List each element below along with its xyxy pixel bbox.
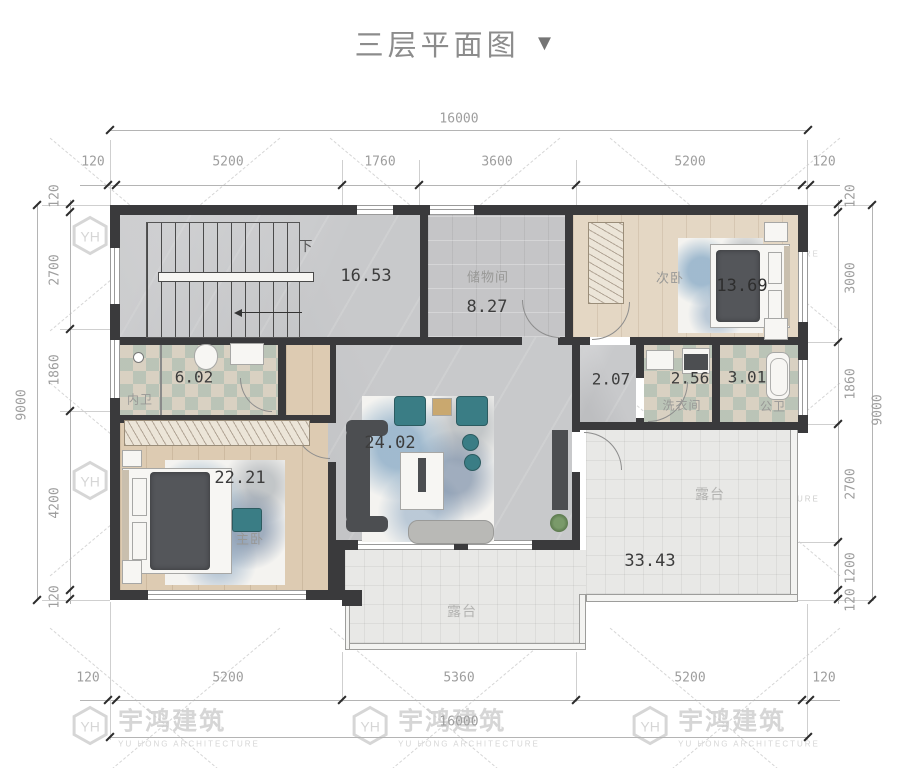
wall-storage-bottom (428, 337, 522, 345)
svg-text:YH: YH (80, 473, 99, 489)
dim-line-left-total (37, 205, 38, 600)
master-bed-pillow (132, 522, 147, 560)
second-bed-headboard (784, 246, 790, 326)
dim-left-total: 9000 (15, 389, 30, 420)
dim-bottom-total: 16000 (439, 715, 478, 730)
closet-wardrobe (588, 222, 624, 304)
coffee-table-tray (418, 458, 426, 492)
second-bed-pillow (768, 252, 782, 284)
tv-console (552, 430, 568, 510)
dim-right-total: 9000 (871, 394, 886, 425)
dim-line-top-tier (80, 185, 840, 186)
shower-head-icon (133, 352, 144, 363)
wall-laundry-left1 (636, 345, 644, 378)
yuhong-logo-icon: YH (630, 705, 670, 745)
laundry-area: 2.56 (671, 369, 710, 388)
nightstand (764, 318, 788, 340)
shower-partition (160, 345, 162, 415)
second-bedroom-label: 次卧 (656, 268, 684, 287)
round-side-table (462, 434, 479, 451)
window-left-1 (110, 248, 120, 304)
svg-text:YH: YH (640, 718, 659, 734)
stair-hall-area: 16.53 (340, 266, 391, 286)
wall-stub (342, 590, 362, 606)
bottom-terrace-label: 露台 (447, 601, 477, 621)
window-top-2 (430, 205, 474, 215)
master-entry-floor (286, 345, 330, 415)
terrace-label: 露台 (695, 484, 725, 504)
floor-selector[interactable]: 三层平面图 ▼ (0, 22, 910, 64)
storage-area: 8.27 (467, 297, 508, 317)
nightstand (764, 222, 788, 242)
armchair (456, 396, 488, 426)
wall-mid-right1 (573, 337, 590, 345)
yuhong-logo-icon: YH (70, 705, 110, 745)
storage-label: 储物间 (467, 267, 509, 286)
window-right-2 (798, 360, 808, 415)
toilet (194, 344, 218, 370)
terrace-parapet-right (790, 428, 798, 602)
armchair (394, 396, 426, 426)
terrace-parapet-step (579, 594, 586, 650)
wall-master-right (328, 462, 336, 590)
wall-bath-right (278, 345, 286, 423)
dim-line-left-tier (70, 200, 71, 604)
public-bath-area: 3.01 (728, 368, 767, 387)
bathtub-inner (770, 358, 788, 396)
wall-laundry-bath (712, 345, 720, 422)
bath-sink (230, 343, 264, 365)
stair-direction-label: 下 (299, 236, 314, 256)
window-right-1 (798, 252, 808, 322)
bottom-terrace-parapet (348, 643, 586, 650)
yuhong-logo-icon: YH (70, 215, 110, 255)
living-area: 24.02 (364, 433, 415, 453)
wall-living-right2 (572, 472, 580, 550)
dim-line-bottom-total (110, 737, 808, 738)
master-bedroom-label: 主卧 (236, 529, 264, 548)
svg-text:YH: YH (80, 228, 99, 244)
dim-line-bottom-tier (80, 700, 840, 701)
sofa-arm (346, 516, 388, 532)
wall-mid-left (120, 337, 420, 345)
round-side-table (464, 454, 481, 471)
public-bath-label: 公卫 (760, 398, 786, 415)
tv-bench (408, 520, 494, 544)
plant-icon (550, 514, 568, 532)
dim-top-total: 16000 (439, 112, 478, 127)
svg-text:YH: YH (360, 718, 379, 734)
stair-arrow-head-icon (234, 309, 242, 317)
window-top-1 (357, 205, 393, 215)
wall-bath-row-bottom (580, 422, 808, 430)
laundry-sink (646, 350, 674, 370)
mid-hall-area: 2.07 (592, 370, 631, 389)
nightstand (122, 450, 142, 467)
bottom-terrace-floor (345, 550, 586, 643)
inner-bath-area: 6.02 (175, 368, 214, 387)
svg-text:YH: YH (80, 718, 99, 734)
master-wardrobe (124, 420, 310, 446)
wall-hall-storage (420, 215, 428, 345)
laundry-label: 洗衣间 (662, 397, 701, 414)
master-bed-duvet (150, 472, 210, 570)
master-bedroom-area: 22.21 (214, 468, 265, 488)
floor-plan-canvas: 三层平面图 ▼ YH宇鸿建筑YU HONG ARCHITECTURE YH宇鸿建… (0, 0, 910, 768)
side-table (432, 398, 452, 416)
wall-storage-bottom2 (558, 337, 573, 345)
window-master-bottom (148, 590, 306, 600)
yuhong-logo-icon: YH (350, 705, 390, 745)
yuhong-logo-icon: YH (70, 460, 110, 500)
dim-line-top-total (110, 130, 808, 131)
master-bed-pillow (132, 478, 147, 516)
nightstand (122, 560, 142, 584)
page-title: 三层平面图 (355, 22, 520, 64)
stair-railing (158, 272, 314, 282)
wall-living-right1 (572, 345, 580, 432)
watermark: YH宇鸿建筑YU HONG ARCHITECTURE (25, 600, 305, 768)
master-bed-headboard (122, 470, 129, 572)
window-left-2 (110, 340, 120, 398)
wall-living-left (330, 345, 336, 423)
inner-bath-label: 内卫 (127, 391, 153, 408)
stair-arrow (240, 312, 302, 313)
chevron-down-icon[interactable]: ▼ (534, 32, 556, 54)
second-bedroom-area: 13.69 (716, 276, 767, 296)
terrace-area: 33.43 (624, 551, 675, 571)
wall-storage-closet (565, 215, 573, 345)
terrace-parapet-bottom (586, 594, 798, 602)
dim-line-right-tier (838, 200, 839, 604)
bottom-terrace-parapet-left (345, 600, 350, 650)
